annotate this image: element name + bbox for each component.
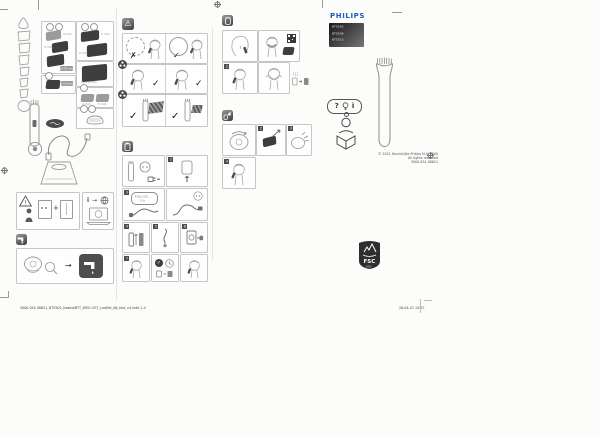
nose-trimmer-icon: [19, 18, 28, 29]
usb-cable-icon: [171, 201, 203, 217]
comb-size-chip: 5-10 mm: [61, 81, 73, 86]
face-illustration: [128, 67, 148, 91]
usage-step-panel: 2: [222, 62, 258, 94]
check-circle-icon: ✓: [155, 259, 163, 267]
comb-size-label: 5 mm: [44, 46, 53, 49]
maintenance-step-panel: 4: [222, 157, 256, 189]
charge-step-panel: [122, 155, 165, 187]
usb-plug-in-icon: [178, 160, 196, 183]
comb-setting-diagram: [291, 70, 311, 90]
check-icon: ✓: [171, 112, 179, 122]
crop-mark: [8, 291, 9, 298]
brush-icon: [44, 261, 58, 275]
face-illustration: [229, 161, 249, 186]
crop-mark: [0, 9, 8, 10]
usb-cable-icon: [158, 228, 173, 249]
comb-size-label: 1 mm: [101, 33, 110, 36]
check-icon: ✓: [173, 52, 180, 60]
rinse-under-tap-icon: [79, 254, 103, 278]
philips-logo: PHILIPS: [330, 12, 365, 20]
face-illustration: [146, 37, 164, 60]
attach-step-icon: [81, 23, 89, 31]
step-number: 4: [125, 225, 127, 228]
model-number: BT5515: [332, 38, 348, 42]
comb-attachment-icon: [82, 64, 107, 83]
step-number: 3: [125, 191, 127, 194]
step-number: 2: [169, 158, 171, 161]
usage-step-panel: [222, 30, 258, 62]
step-number: 3: [289, 127, 291, 130]
check-icon: ✓: [129, 112, 137, 122]
step-number: 2: [259, 127, 261, 130]
lightbulb-icon: [342, 102, 349, 111]
face-illustration: [188, 37, 206, 60]
registration-mark: [214, 1, 221, 8]
powerbank-icon: [128, 230, 145, 249]
comb-attachment-icon: [45, 80, 60, 89]
trimmer-open-icon: [223, 111, 232, 120]
charge-step-panel: 7: [122, 254, 150, 282]
face-illustration: [230, 66, 250, 91]
charge-step-panel: [166, 188, 208, 221]
copyright-line: 3000 054 08621: [378, 160, 438, 164]
maintenance-step-panel: [222, 124, 256, 156]
warning-triangle-icon: !: [19, 195, 32, 207]
battery-icon: [124, 142, 131, 151]
usage-section-icon: [222, 15, 233, 26]
trimmer-icon: [127, 160, 135, 183]
dial-attachment-icon: [27, 141, 43, 157]
wall-outlet-plug-icon: [186, 229, 204, 247]
attach-step-icon: [80, 105, 88, 113]
step-number: 6: [183, 225, 185, 228]
attach-step-icon: [80, 84, 88, 92]
parts-panel-a2: 5-10 mm: [41, 75, 76, 94]
attach-step-icon: [45, 72, 53, 80]
fold-line: [116, 8, 117, 300]
charge-step-panel: 6: [180, 222, 208, 253]
attach-step-icon: [46, 23, 54, 31]
comb-size-label: 3 mm: [63, 33, 72, 36]
safety-leaflet-panel: ! +: [16, 192, 80, 230]
comb-attachment-icon: [46, 30, 61, 41]
laptop-icon: [86, 207, 111, 226]
face-illustration: [172, 67, 192, 91]
comb-attachment-icon: [81, 30, 99, 42]
step-number: 2: [225, 65, 227, 68]
arrow-right-icon: →: [65, 262, 72, 270]
model-number: BT5502: [332, 25, 348, 29]
online-manual-panel: i →: [82, 192, 114, 230]
battery-level-icon: [156, 270, 174, 278]
usb-cable-icon: [44, 125, 92, 161]
fabric-test-panel: ✓ ✓: [122, 94, 208, 127]
comb-attachment-icon: [80, 94, 94, 102]
check-icon: ✓: [152, 80, 160, 89]
charge-step-panel: [180, 254, 208, 282]
warning-section-icon: ⚠: [122, 18, 134, 30]
shaver-head-icon: [85, 114, 105, 125]
comb-size-label: 2 mm: [79, 52, 88, 55]
parts-panel-b2: 10-20 mm: [76, 61, 114, 87]
cleaning-section-icon: [16, 234, 27, 245]
comb-attachment-icon: [52, 41, 68, 54]
clean-head-illustration: [290, 131, 309, 151]
charge-step-panel: 4: [122, 222, 150, 253]
svg-text:!: !: [24, 200, 26, 207]
question-icon: ?: [335, 103, 339, 110]
note-badge-icon: [118, 60, 127, 69]
do-dont-panel: ✗ ✓: [122, 33, 208, 64]
comb-size-chip: 10-20 mm: [60, 66, 73, 71]
charge-step-panel: 2: [166, 155, 208, 187]
comb-size-label: 5 mm: [98, 103, 107, 106]
maintenance-section-icon: [222, 110, 233, 121]
clock-icon: [165, 259, 174, 268]
check-icon: ✓: [195, 80, 203, 89]
fsc-logo: FSC MIX: [357, 239, 382, 270]
trimmer-head-icon: [22, 254, 44, 278]
cleaning-panel: →: [16, 248, 114, 284]
registration-mark: [1, 167, 8, 174]
charge-speech-bubble: FULL CH. 3 h: [131, 192, 158, 205]
crop-mark: [420, 299, 421, 313]
maintenance-step-panel: 3: [286, 124, 312, 156]
charge-step-panel: 3 FULL CH. 3 h: [122, 188, 165, 221]
charging-stand-icon: [36, 157, 82, 187]
faucet-icon: [17, 235, 26, 244]
model-number-box: BT5502 BT5509 BT5515: [329, 23, 364, 47]
charge-status-panel: ✓: [151, 254, 179, 282]
arrow-up-icon: [271, 128, 282, 138]
parts-panel-b: 1 mm 2 mm: [76, 21, 114, 61]
qr-code-icon: [287, 34, 296, 43]
step-number: 7: [125, 257, 127, 260]
comb-attachment-icon: [87, 43, 107, 58]
warning-triangle-icon: ⚠: [124, 20, 131, 28]
crop-mark: [392, 12, 402, 13]
parts-panel-a: 3 mm 5 mm 10-20 mm: [41, 21, 76, 74]
info-icon: i: [352, 103, 354, 110]
plus-icon: +: [53, 205, 59, 212]
footer-filename: 3000 054 08621_BT5502_Naked/BTT_WEU LFLT…: [20, 306, 146, 310]
crop-mark: [0, 297, 8, 298]
svg-text:MIX: MIX: [366, 265, 372, 269]
bearded-face-illustration: [263, 65, 285, 91]
model-number: BT5509: [332, 32, 348, 36]
usb-cable-icon: [128, 205, 160, 218]
crop-mark: [424, 300, 432, 301]
cross-icon: ✗: [130, 52, 137, 60]
step-number: 5: [154, 225, 156, 228]
charging-section-icon: [122, 141, 133, 152]
face-illustration: [262, 34, 282, 58]
trimmer-icon: [224, 16, 232, 25]
globe-icon: [100, 196, 109, 205]
crop-mark: [322, 0, 323, 8]
booklet-icon: [38, 200, 52, 219]
usage-step-panel: [258, 30, 300, 62]
arrow-right-icon: →: [92, 197, 97, 205]
copyright-block: © 2021 Koninklijke Philips N.V. 3000 All…: [378, 152, 438, 164]
head-profile-illustration: [227, 34, 254, 59]
product-outline: [371, 55, 399, 149]
power-plug-icon: [147, 174, 161, 184]
reading-person-icon: [330, 116, 362, 150]
wall-socket-icon: [139, 161, 151, 173]
usage-step-panel: [258, 62, 290, 94]
comb-attachment-icon: [95, 94, 109, 102]
step-number: 4: [225, 160, 227, 163]
info-icon: i: [87, 197, 89, 205]
usage-ok-panel: ✓ ✓: [122, 64, 208, 94]
booklet-icon: [60, 200, 73, 219]
crop-mark: [38, 0, 39, 10]
person-icon: [24, 208, 34, 223]
face-illustration: [127, 258, 146, 279]
fabric-swatch: [148, 101, 164, 114]
detach-head-illustration: [227, 129, 252, 152]
comb-attachment-icon: [282, 47, 294, 55]
attach-step-icon: [88, 105, 96, 113]
maintenance-step-panel: 2: [256, 124, 286, 156]
wall-socket-icon: [193, 191, 203, 201]
charge-step-panel: 5: [151, 222, 179, 253]
leaflet-scan-page: 3 mm 5 mm 10-20 mm 5-10 mm 1 mm 2 mm 10-…: [0, 0, 600, 437]
face-illustration: [185, 258, 204, 279]
fabric-swatch: [191, 105, 203, 113]
fold-line: [212, 28, 213, 260]
note-badge-icon: [118, 90, 127, 99]
